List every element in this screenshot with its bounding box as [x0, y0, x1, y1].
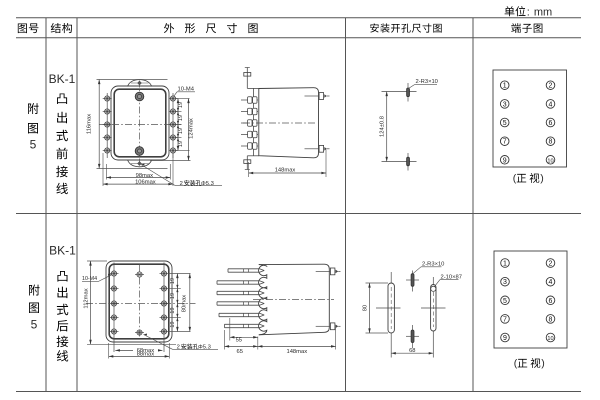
svg-text:7: 7 — [503, 316, 507, 323]
svg-text:148max: 148max — [286, 349, 307, 355]
svg-text:8: 8 — [549, 139, 553, 146]
svg-text:148max: 148max — [275, 167, 296, 173]
svg-text:19: 19 — [170, 293, 176, 299]
svg-text:9: 9 — [503, 335, 507, 342]
svg-text:8: 8 — [549, 316, 553, 323]
svg-text:19: 19 — [170, 321, 176, 327]
svg-text:80: 80 — [362, 305, 368, 311]
svg-text:65: 65 — [236, 349, 242, 355]
svg-text:5: 5 — [503, 298, 507, 305]
svg-text:19: 19 — [178, 115, 184, 121]
svg-text:BK-1: BK-1 — [49, 72, 76, 86]
svg-text::: : — [527, 6, 530, 18]
svg-text:3: 3 — [503, 279, 507, 286]
svg-text:Φ5.3: Φ5.3 — [198, 345, 211, 351]
svg-text:6: 6 — [549, 120, 553, 127]
svg-text:mm: mm — [534, 6, 552, 18]
svg-text:4: 4 — [549, 101, 553, 108]
svg-text:1: 1 — [503, 83, 507, 90]
svg-text:116max: 116max — [87, 114, 93, 134]
svg-text:): ) — [541, 358, 545, 370]
svg-text:2: 2 — [177, 345, 180, 351]
svg-text:112max: 112max — [83, 288, 89, 308]
svg-text:6: 6 — [549, 298, 553, 305]
svg-text:98max: 98max — [136, 173, 154, 179]
svg-text:4: 4 — [549, 279, 553, 286]
svg-text:(: ( — [513, 173, 517, 185]
svg-text:(: ( — [514, 358, 518, 370]
svg-text:2: 2 — [549, 261, 553, 268]
svg-text:19: 19 — [178, 141, 184, 147]
svg-text:19: 19 — [178, 102, 184, 108]
svg-text:68: 68 — [409, 348, 415, 354]
svg-text:1: 1 — [503, 261, 507, 268]
svg-text:19: 19 — [178, 128, 184, 134]
svg-text:3: 3 — [503, 101, 507, 108]
svg-text:5: 5 — [30, 138, 37, 152]
svg-text:19: 19 — [170, 278, 176, 284]
svg-text:124±0.8: 124±0.8 — [379, 116, 385, 137]
svg-text:124max: 124max — [188, 118, 194, 139]
svg-text:55: 55 — [236, 338, 242, 344]
svg-text:10: 10 — [547, 336, 553, 342]
svg-text:2: 2 — [180, 181, 183, 187]
svg-text:9: 9 — [503, 157, 507, 164]
svg-text:80max: 80max — [182, 295, 188, 313]
svg-text:10: 10 — [547, 158, 553, 164]
svg-text:19: 19 — [170, 307, 176, 313]
svg-text:106max: 106max — [135, 179, 156, 185]
svg-text:7: 7 — [503, 139, 507, 146]
svg-text:88max: 88max — [137, 352, 155, 358]
svg-text:): ) — [540, 173, 544, 185]
svg-text:2: 2 — [549, 83, 553, 90]
svg-text:Φ5.3: Φ5.3 — [201, 181, 214, 187]
svg-text:5: 5 — [31, 318, 38, 332]
svg-text:5: 5 — [503, 120, 507, 127]
svg-text:BK-1: BK-1 — [49, 244, 76, 258]
